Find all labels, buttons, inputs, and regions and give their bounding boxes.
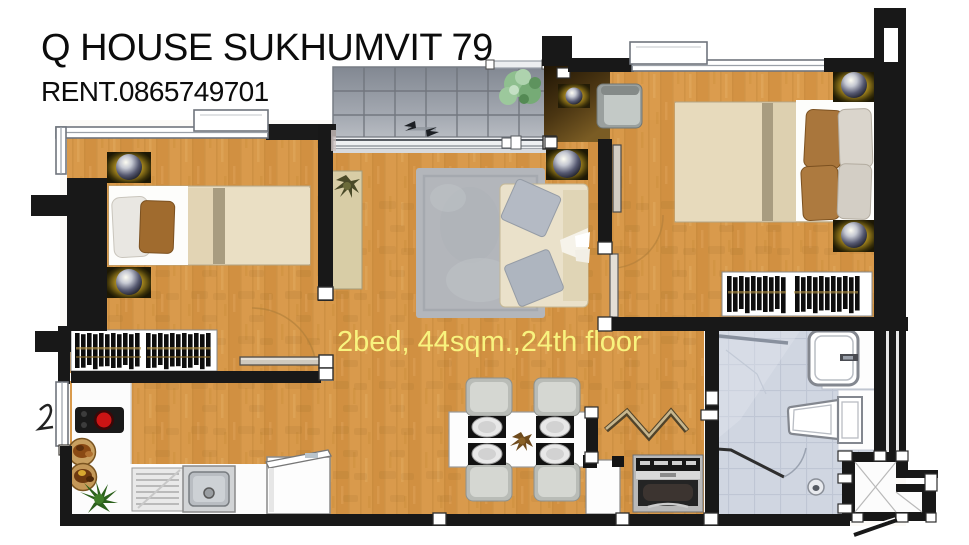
svg-text:Q HOUSE SUKHUMVIT 79: Q HOUSE SUKHUMVIT 79 [41, 27, 493, 69]
svg-text:RENT.0865749701: RENT.0865749701 [41, 76, 269, 107]
svg-text:2bed, 44sqm.,24th floor: 2bed, 44sqm.,24th floor [337, 326, 642, 358]
